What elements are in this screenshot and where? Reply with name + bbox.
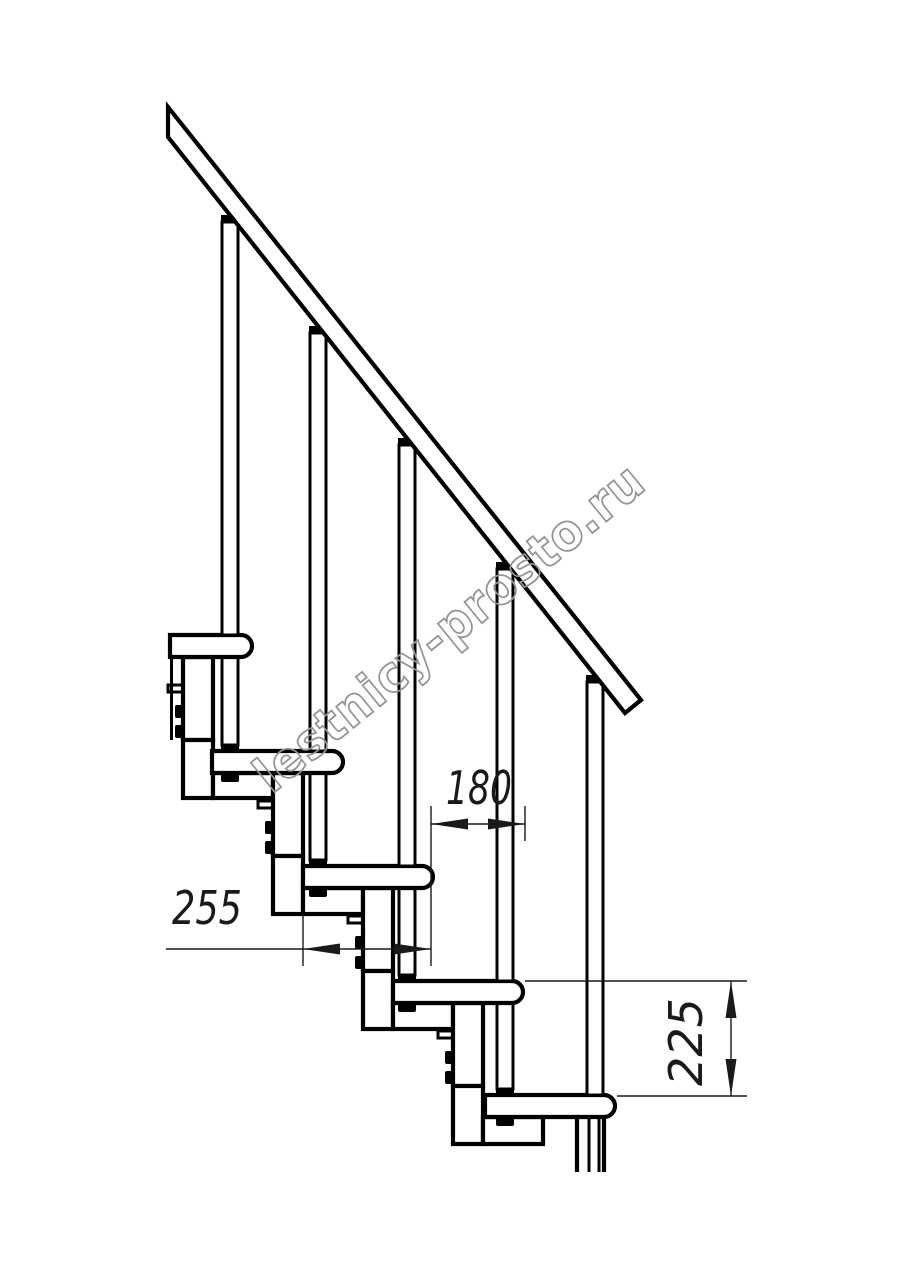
tread-1 (170, 635, 252, 657)
rod-cap (398, 974, 416, 981)
under-tread-bolt (496, 1118, 514, 1126)
baluster-1 (221, 215, 239, 635)
support-rod-3 (399, 888, 415, 975)
column-tab (258, 801, 273, 808)
bolt (265, 841, 273, 854)
support-rod-2 (310, 773, 326, 860)
bolt (355, 936, 363, 949)
under-tread-bolt (221, 774, 239, 782)
column-lower-box (453, 1086, 483, 1144)
baluster-2 (309, 326, 327, 751)
dimension-label-225: 225 (659, 998, 713, 1086)
column-lower-box (363, 971, 393, 1029)
dimension-225: 225 (525, 981, 747, 1096)
support-column-4 (438, 1003, 543, 1144)
arrowhead-left (303, 944, 340, 955)
column-tab (438, 1031, 453, 1038)
support-column-5 (577, 1117, 604, 1172)
support-rod-4 (497, 1003, 513, 1089)
column-upper-box (453, 1003, 483, 1086)
under-tread-bolt (309, 889, 327, 897)
arrowhead-down (726, 1059, 737, 1096)
bolt (445, 1071, 453, 1084)
baluster-post (222, 222, 238, 635)
baluster-5 (586, 675, 604, 1095)
arrowhead-up (726, 981, 737, 1018)
rod-cap (309, 859, 327, 866)
drawing-page: 255 180 225 lestnicy-prosto.ru (0, 0, 914, 1280)
rod-cap (221, 744, 239, 751)
bolt (175, 705, 183, 718)
support-rod-1 (222, 657, 238, 745)
dimension-label-255: 255 (172, 881, 242, 935)
bolt (355, 956, 363, 969)
column-lower-box (273, 856, 303, 914)
bolt (265, 821, 273, 834)
tread-3 (303, 866, 433, 888)
column-upper-box (183, 657, 213, 740)
staircase-drawing: 255 180 225 lestnicy-prosto.ru (0, 0, 914, 1280)
arrowhead-left (431, 819, 468, 830)
dimension-label-180: 180 (446, 761, 512, 815)
tread-4 (393, 981, 523, 1003)
column-lower-box (183, 740, 213, 798)
bolt (175, 725, 183, 738)
under-tread-bolt (398, 1004, 416, 1012)
baluster-post (310, 333, 326, 751)
column-tab (348, 916, 363, 923)
baluster-post (587, 682, 603, 1095)
column-upper-box (363, 888, 393, 971)
tread-5 (485, 1095, 615, 1117)
rod-cap (496, 1088, 514, 1095)
bolt (445, 1051, 453, 1064)
